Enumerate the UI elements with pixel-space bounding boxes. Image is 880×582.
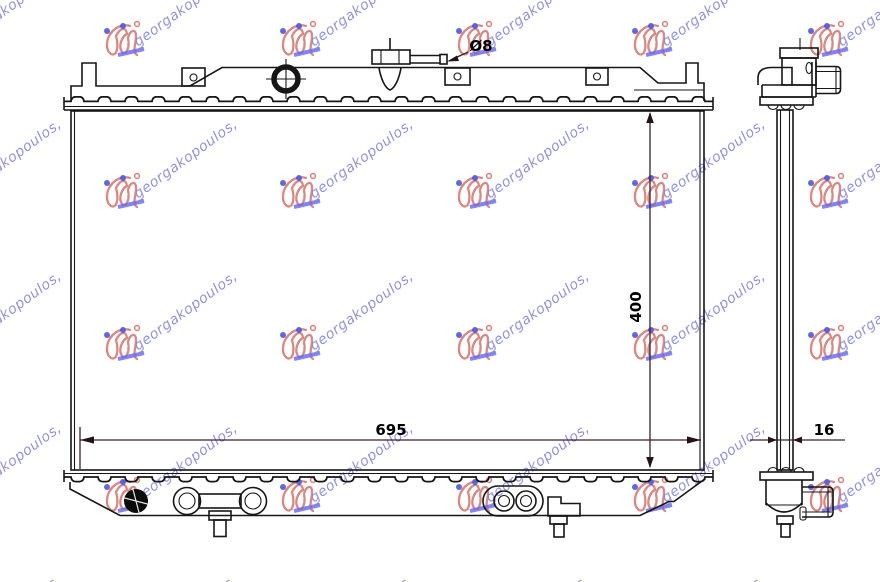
mounting-pin: [777, 516, 793, 537]
overflow-fitting: [372, 38, 447, 90]
mounting-bracket: [586, 68, 608, 85]
dimension-core-height: 400: [627, 112, 654, 468]
radiator-technical-drawing-page: georgakopoulos,: [0, 0, 880, 582]
center-bracket-pin: [548, 497, 580, 537]
filler-funnel: [379, 68, 401, 90]
technical-drawing-canvas: georgakopoulos,: [0, 0, 880, 582]
mounting-bracket: [445, 68, 470, 85]
dimension-core-width-label: 695: [375, 421, 406, 439]
inlet-pipe: [816, 67, 841, 94]
top-header-strip: [64, 96, 713, 110]
dimension-core-thickness-label: 16: [814, 421, 835, 439]
dimension-overflow-pipe-label: Ø8: [469, 37, 492, 55]
top-tank-outline: [71, 63, 704, 101]
overflow-pipe-nipple: [440, 55, 447, 65]
drain-plug: [124, 489, 148, 513]
side-view: [758, 38, 841, 537]
filler-cap: [266, 59, 306, 99]
side-view-top-tank: [758, 38, 841, 110]
dimension-core-height-label: 400: [627, 291, 645, 322]
dimension-overflow-pipe: Ø8: [447, 37, 493, 62]
side-view-core: [777, 110, 793, 470]
